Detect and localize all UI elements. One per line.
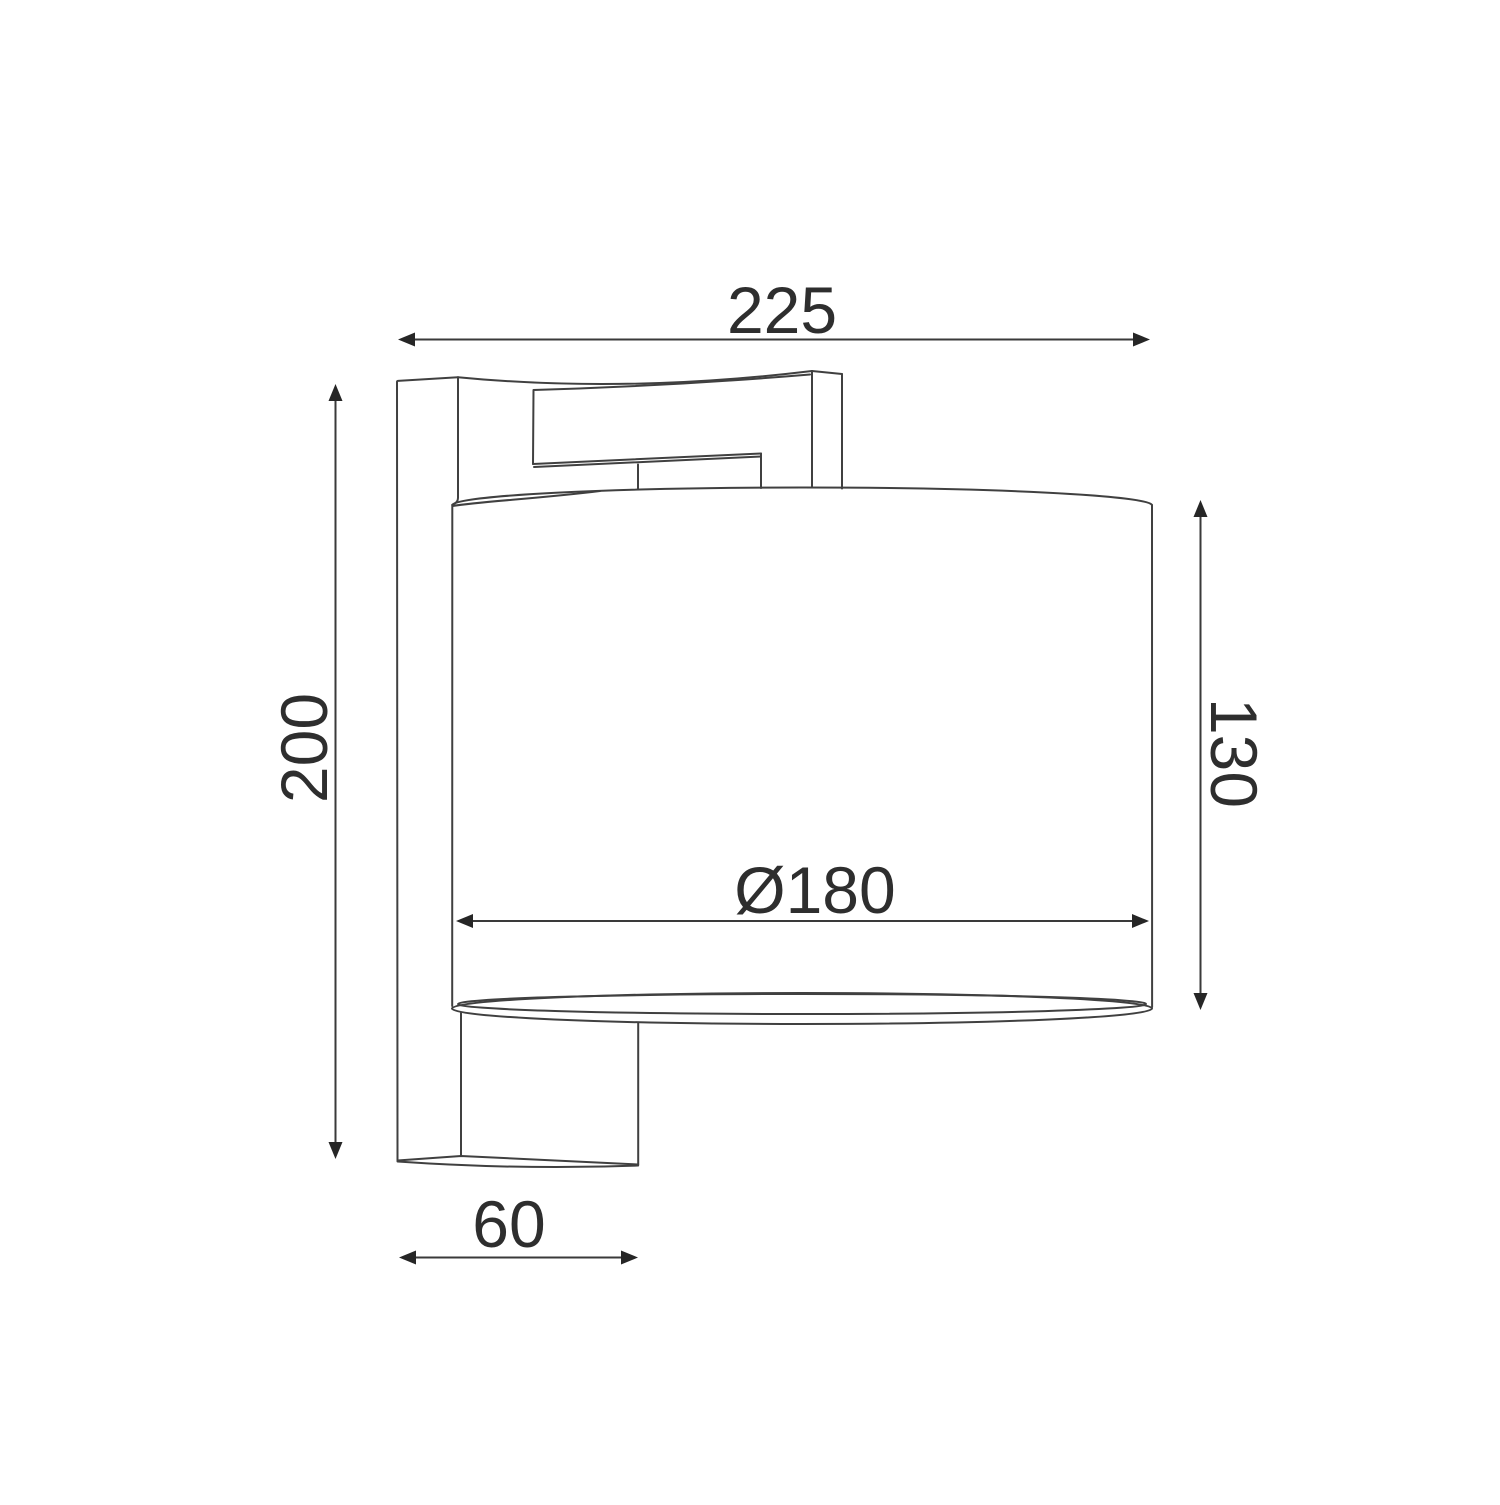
- svg-text:200: 200: [267, 693, 341, 803]
- svg-text:60: 60: [472, 1187, 545, 1261]
- svg-text:Ø180: Ø180: [734, 853, 895, 927]
- svg-text:130: 130: [1197, 698, 1271, 808]
- svg-text:225: 225: [727, 273, 837, 347]
